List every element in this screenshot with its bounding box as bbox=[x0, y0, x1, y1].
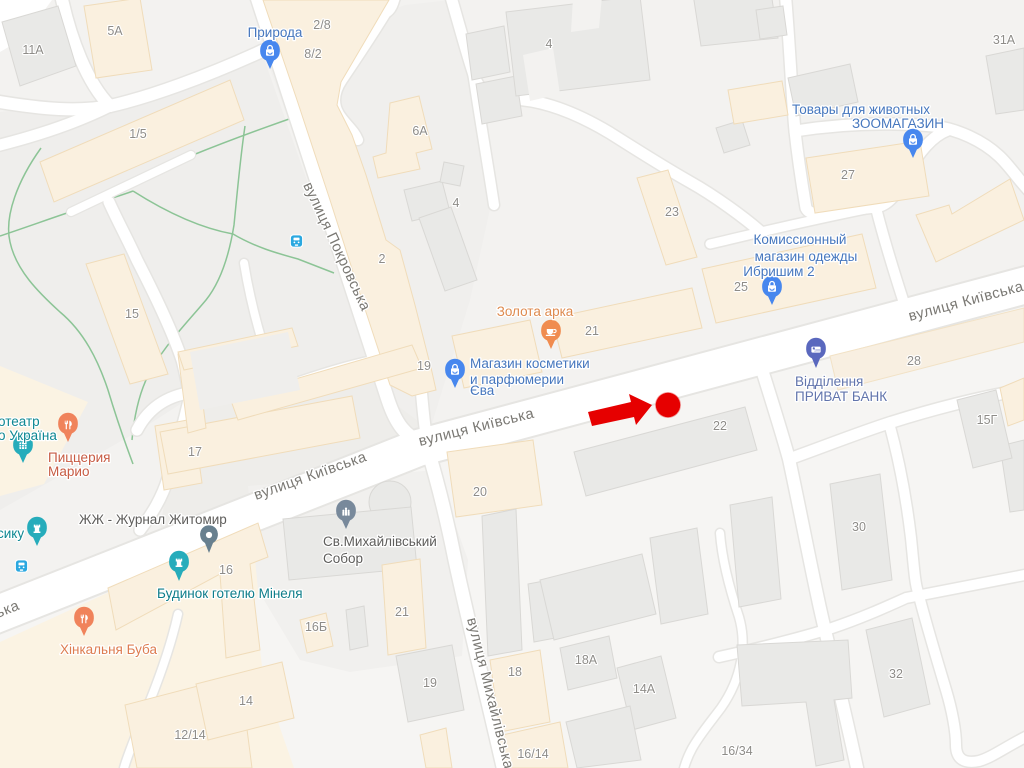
svg-text:22: 22 bbox=[713, 419, 727, 433]
svg-text:1/5: 1/5 bbox=[129, 127, 146, 141]
svg-text:18A: 18A bbox=[575, 653, 598, 667]
svg-text:Комиссионный: Комиссионный bbox=[754, 232, 847, 247]
svg-text:16Б: 16Б bbox=[305, 620, 327, 634]
svg-text:15Г: 15Г bbox=[977, 413, 998, 427]
svg-text:Товары для животных: Товары для животных bbox=[792, 102, 930, 117]
svg-text:Марио: Марио bbox=[48, 464, 89, 479]
svg-text:2/8: 2/8 bbox=[313, 18, 330, 32]
svg-text:8/2: 8/2 bbox=[304, 47, 321, 61]
svg-text:магазин одежды: магазин одежды bbox=[755, 249, 858, 264]
svg-text:о Україна: о Україна bbox=[0, 428, 57, 443]
svg-text:ПРИВАТ БАНК: ПРИВАТ БАНК bbox=[795, 389, 887, 404]
svg-text:Ибришим 2: Ибришим 2 bbox=[743, 264, 814, 279]
svg-text:6A: 6A bbox=[412, 124, 428, 138]
svg-text:16: 16 bbox=[219, 563, 233, 577]
svg-text:21: 21 bbox=[585, 324, 599, 338]
svg-text:100: 100 bbox=[814, 349, 820, 353]
svg-text:Золота арка: Золота арка bbox=[497, 304, 574, 319]
svg-text:отеатр: отеатр bbox=[0, 414, 40, 429]
svg-text:14A: 14A bbox=[633, 682, 656, 696]
svg-text:11A: 11A bbox=[22, 43, 44, 57]
svg-text:17: 17 bbox=[188, 445, 202, 459]
svg-text:31A: 31A bbox=[993, 33, 1016, 47]
svg-text:2: 2 bbox=[379, 252, 386, 266]
svg-text:23: 23 bbox=[665, 205, 679, 219]
svg-text:4: 4 bbox=[546, 37, 553, 51]
svg-text:19: 19 bbox=[423, 676, 437, 690]
svg-text:Природа: Природа bbox=[248, 25, 303, 40]
svg-text:Єва: Єва bbox=[470, 383, 495, 398]
svg-text:Будинок готелю Мінеля: Будинок готелю Мінеля bbox=[157, 586, 303, 601]
svg-text:Собор: Собор bbox=[323, 551, 363, 566]
svg-text:Пиццерия: Пиццерия bbox=[48, 450, 110, 465]
svg-text:ЗООМАГАЗИН: ЗООМАГАЗИН bbox=[852, 116, 944, 131]
svg-text:28: 28 bbox=[907, 354, 921, 368]
svg-text:19: 19 bbox=[417, 359, 431, 373]
svg-text:Св.Михайлівський: Св.Михайлівський bbox=[323, 534, 437, 549]
svg-text:4: 4 bbox=[453, 196, 460, 210]
svg-text:Відділення: Відділення bbox=[795, 374, 863, 389]
svg-text:14: 14 bbox=[239, 694, 253, 708]
svg-text:27: 27 bbox=[841, 168, 855, 182]
svg-text:сику: сику bbox=[0, 526, 24, 541]
svg-text:18: 18 bbox=[508, 665, 522, 679]
svg-text:12/14: 12/14 bbox=[174, 728, 205, 742]
svg-text:16/34: 16/34 bbox=[721, 744, 752, 758]
svg-text:Хінкальня Буба: Хінкальня Буба bbox=[60, 642, 157, 657]
svg-text:5A: 5A bbox=[107, 24, 123, 38]
svg-text:30: 30 bbox=[852, 520, 866, 534]
svg-text:15: 15 bbox=[125, 307, 139, 321]
svg-text:Магазин косметики: Магазин косметики bbox=[470, 356, 590, 371]
svg-text:32: 32 bbox=[889, 667, 903, 681]
svg-text:16/14: 16/14 bbox=[517, 747, 548, 761]
svg-text:ЖЖ - Журнал Житомир: ЖЖ - Журнал Житомир bbox=[79, 512, 227, 527]
svg-text:25: 25 bbox=[734, 280, 748, 294]
svg-text:20: 20 bbox=[473, 485, 487, 499]
svg-text:21: 21 bbox=[395, 605, 409, 619]
